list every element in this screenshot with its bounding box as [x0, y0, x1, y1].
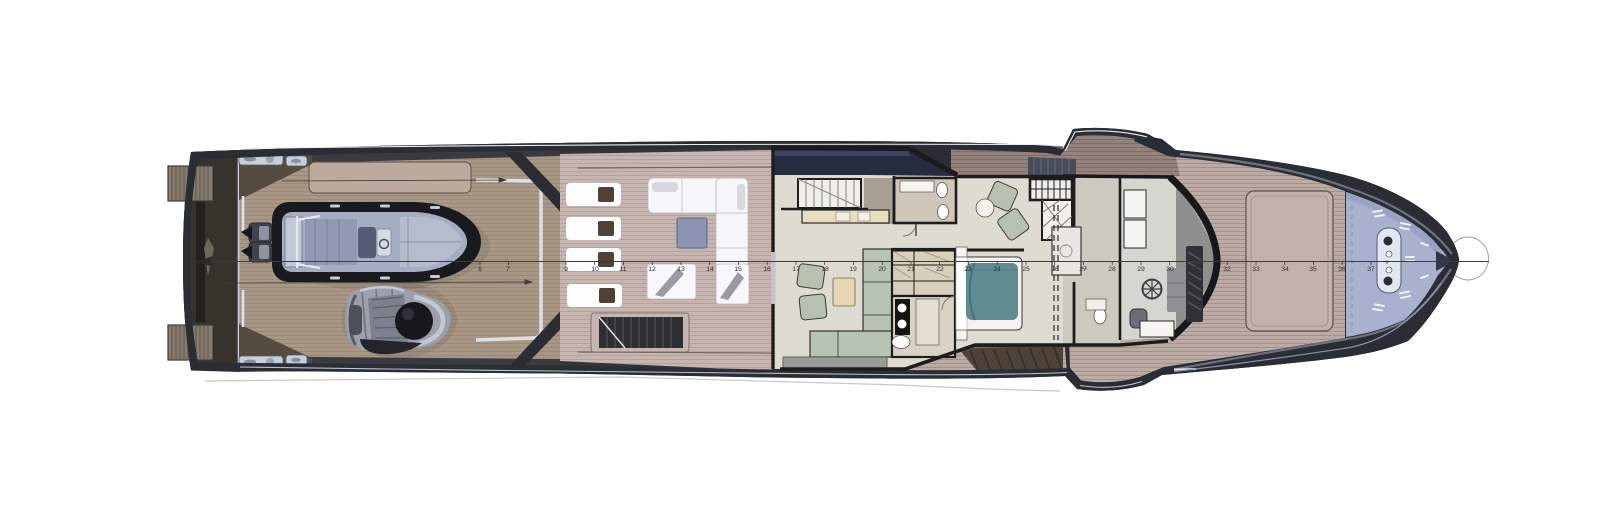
svg-text:12: 12: [648, 266, 656, 273]
svg-text:30: 30: [1166, 266, 1174, 273]
svg-text:25: 25: [1022, 266, 1030, 273]
svg-text:31: 31: [1194, 266, 1202, 273]
svg-text:15: 15: [734, 266, 742, 273]
svg-text:6: 6: [478, 266, 482, 273]
svg-text:27: 27: [1079, 266, 1087, 273]
svg-text:17: 17: [792, 266, 800, 273]
svg-text:16: 16: [763, 266, 771, 273]
svg-text:29: 29: [1137, 266, 1145, 273]
svg-text:10: 10: [591, 266, 599, 273]
svg-text:35: 35: [1309, 266, 1317, 273]
svg-text:34: 34: [1281, 266, 1289, 273]
svg-text:21: 21: [907, 266, 915, 273]
svg-text:37: 37: [1367, 266, 1375, 273]
svg-text:19: 19: [849, 266, 857, 273]
svg-text:9: 9: [564, 266, 568, 273]
svg-text:22: 22: [936, 266, 944, 273]
svg-text:28: 28: [1108, 266, 1116, 273]
svg-text:7: 7: [506, 266, 510, 273]
svg-text:26: 26: [1051, 266, 1059, 273]
svg-text:23: 23: [964, 266, 972, 273]
svg-text:20: 20: [878, 266, 886, 273]
svg-text:18: 18: [821, 266, 829, 273]
svg-text:36: 36: [1338, 266, 1346, 273]
svg-text:32: 32: [1223, 266, 1231, 273]
svg-text:11: 11: [619, 266, 626, 273]
svg-text:24: 24: [993, 266, 1001, 273]
svg-text:33: 33: [1252, 266, 1260, 273]
svg-text:13: 13: [677, 266, 685, 273]
svg-text:14: 14: [706, 266, 714, 273]
